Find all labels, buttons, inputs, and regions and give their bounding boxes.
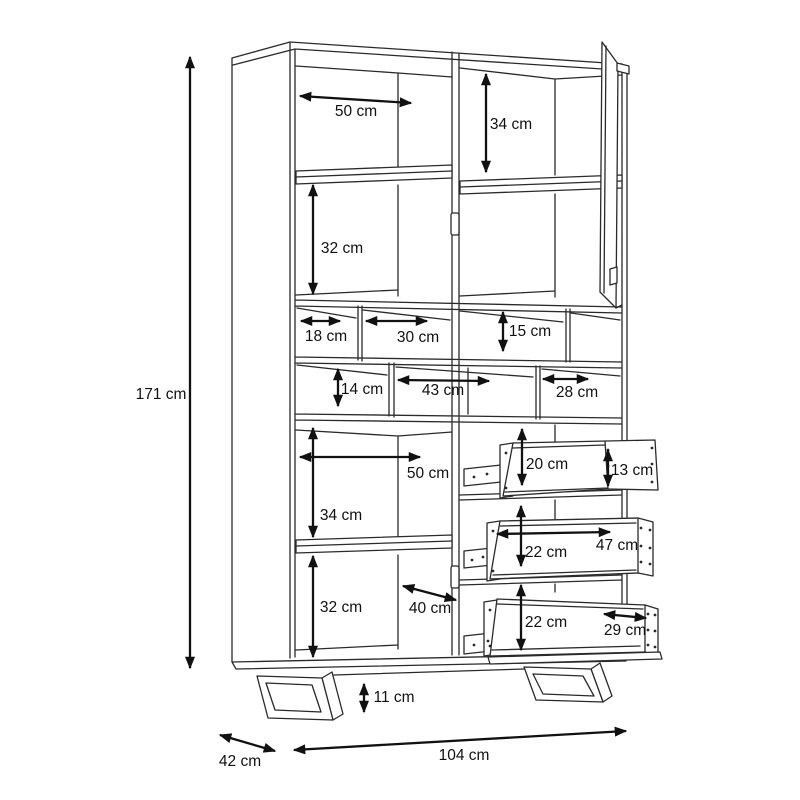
dim-label: 13 cm [611,462,653,479]
dim-arrow [220,735,275,751]
dim-label: 171 cm [136,386,187,403]
dim-cubby-top-middle-width: 30 cm [366,321,439,346]
dim-lower-upper-height: 34 cm [313,428,362,537]
technical-drawing-canvas: 171 cm 50 cm 34 cm 32 cm 18 cm 30 cm 15 … [0,0,800,800]
dim-label: 28 cm [556,384,598,401]
dim-label: 50 cm [407,465,449,482]
dim-label: 32 cm [321,240,363,257]
leg-frame [257,676,333,720]
leg-frame [524,667,603,702]
dim-overall-height: 171 cm [136,57,190,668]
dim-label: 40 cm [409,600,451,617]
cabinet-carcass [232,42,627,675]
leg-right [524,663,612,702]
dim-label: 14 cm [341,381,383,398]
dim-label: 30 cm [397,329,439,346]
dim-label: 15 cm [509,323,551,340]
dim-upper-right-inner-height: 34 cm [486,74,532,172]
dim-upper-left-lower-height: 32 cm [313,185,363,294]
leg-left [257,672,343,720]
dim-label: 50 cm [335,103,377,120]
upper-left-shelf [296,165,452,184]
dim-label: 29 cm [604,622,646,639]
dim-upper-shelf-width: 50 cm [300,96,411,120]
dim-label: 104 cm [439,747,490,764]
dim-plinth-height: 11 cm [364,684,415,712]
dim-overall-depth: 42 cm [219,735,275,770]
lower-door-handle [451,566,459,588]
dim-arrow [403,586,456,600]
dim-label: 47 cm [596,537,638,554]
dim-label: 42 cm [219,753,261,770]
upper-right-shelf [460,175,622,194]
dim-cubby-top-left-width: 18 cm [301,321,347,345]
open-door [600,42,629,308]
dim-lower-shelf-width: 50 cm [300,457,449,482]
dim-arrow [300,96,411,103]
lower-left-shelf [296,535,452,553]
dim-cubby-bottom-right-width: 28 cm [543,379,598,401]
dim-label: 34 cm [320,507,362,524]
dim-label: 34 cm [490,116,532,133]
dim-label: 22 cm [525,614,567,631]
dim-lower-door-depth: 40 cm [403,586,456,617]
door-handle [610,267,617,285]
carcass-outline [232,42,627,675]
dim-lower-lower-height: 32 cm [313,556,362,657]
dim-label: 11 cm [373,689,414,706]
drawer-slide-rail [464,465,501,486]
upper-door-handle [451,213,459,235]
door-top-cap [617,63,629,74]
dim-overall-width: 104 cm [294,731,626,764]
cabinet-dimension-diagram: 171 cm 50 cm 34 cm 32 cm 18 cm 30 cm 15 … [0,0,800,800]
dim-label: 32 cm [320,599,362,616]
dim-label: 18 cm [305,328,347,345]
dim-cubby-bottom-middle-width: 43 cm [398,380,489,399]
dim-label: 43 cm [422,382,464,399]
dim-label: 22 cm [525,544,567,561]
dim-label: 20 cm [526,456,568,473]
dim-cubby-bottom-left-height: 14 cm [338,369,383,406]
dim-arrow [398,380,489,381]
